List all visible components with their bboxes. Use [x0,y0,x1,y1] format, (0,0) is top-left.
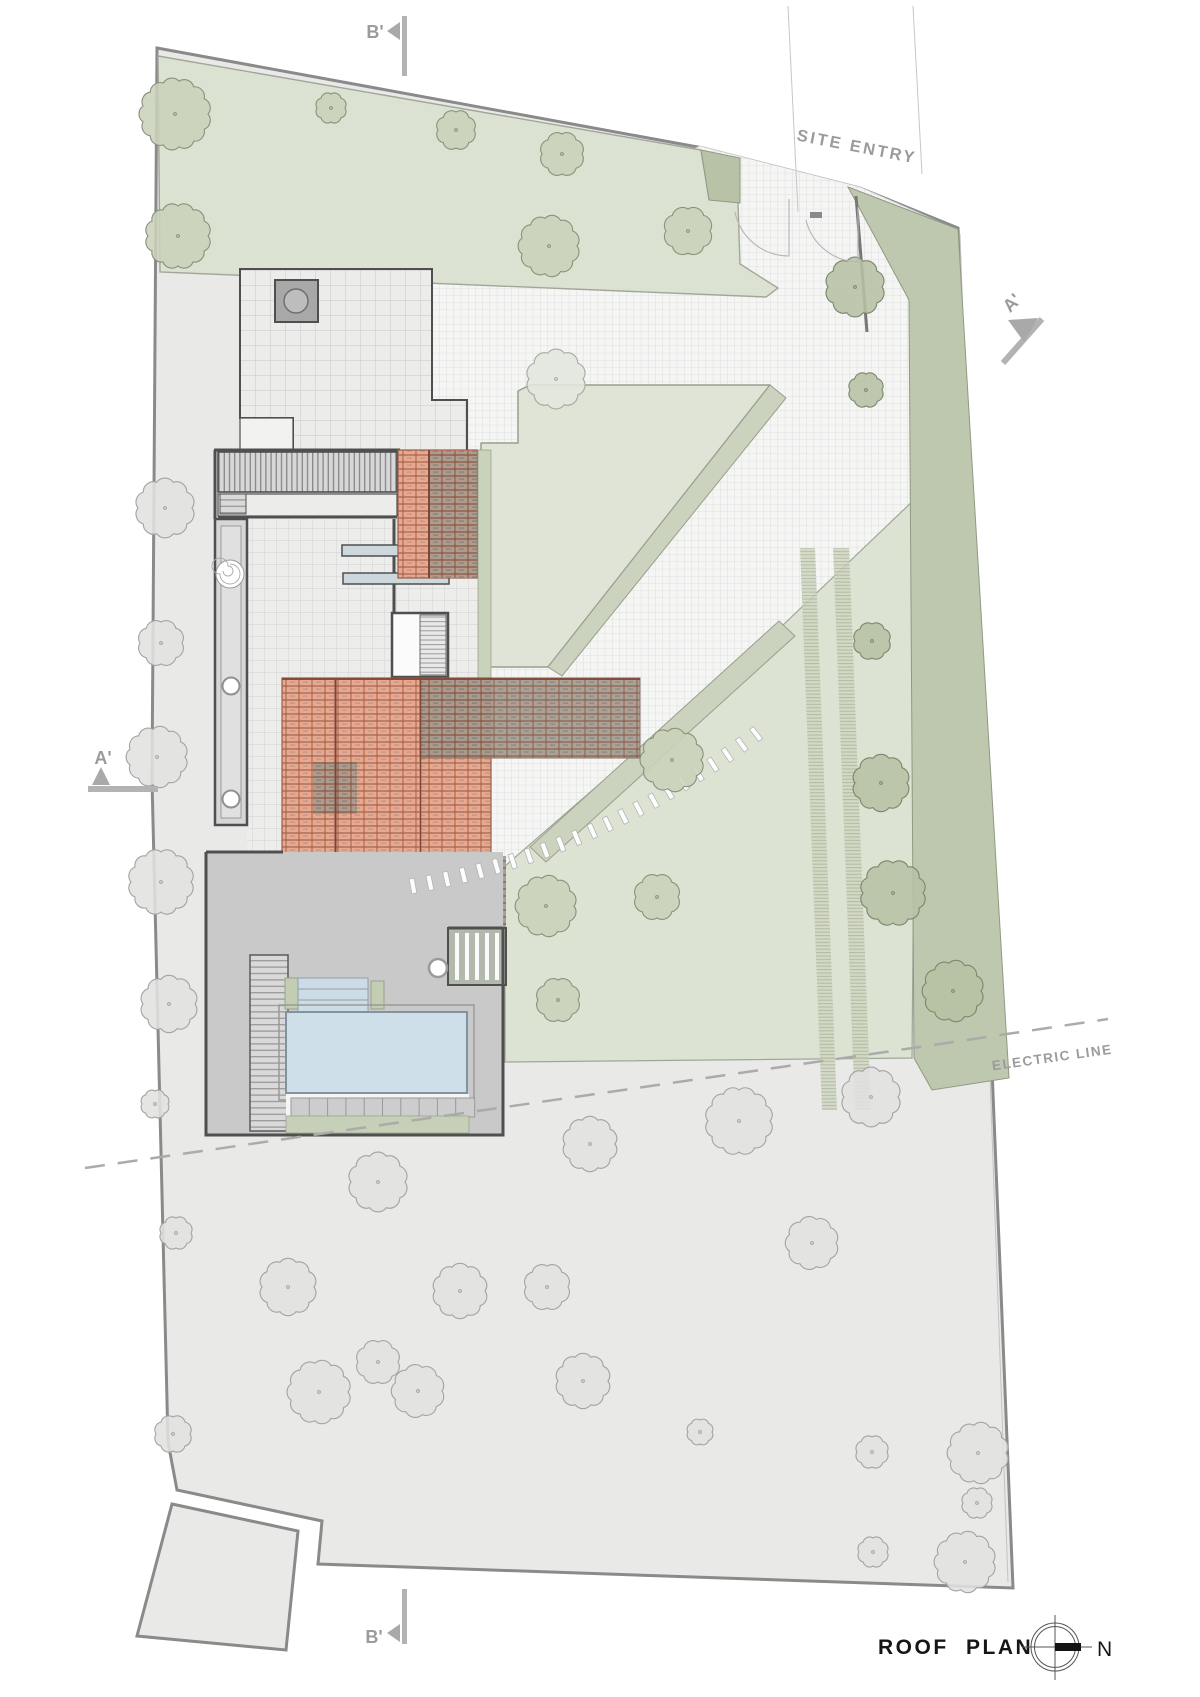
section-marker-a-right: A' [999,290,1042,363]
tree [842,1067,900,1127]
stepping-stone [309,1098,328,1117]
north-label: N [1097,1638,1112,1661]
tree [861,861,925,925]
stepping-stone [364,1098,383,1117]
site-parcel-southwest [137,1504,298,1650]
roof-plan-drawing: SITE ENTRY ELECTRIC LINE A' A' B' B' ROO… [0,0,1200,1697]
roof-upper [398,450,477,578]
electric-line-label: ELECTRIC LINE [991,1042,1113,1074]
tree [129,850,193,914]
stair-treads [420,615,446,675]
pool-column [429,959,447,977]
stepping-stone [419,1098,438,1117]
section-marker-b-bottom: B' [365,1589,407,1647]
chimney-flue [284,289,308,313]
lap-pool-header [298,978,368,1012]
tree [146,204,210,268]
roof-plan-canvas: SITE ENTRY ELECTRIC LINE A' A' B' B' ROO… [0,0,1200,1697]
stepping-stone [346,1098,365,1117]
svg-text:B': B' [365,1627,382,1647]
steps-small [220,494,246,514]
deck-boards [250,955,288,1131]
column-2 [223,791,240,808]
tree [826,257,884,317]
svg-text:A': A' [999,290,1025,316]
site-entry-label: SITE ENTRY [795,127,918,168]
stepping-stone [328,1098,347,1117]
tree [141,975,197,1032]
tree [260,1258,316,1315]
tree [563,1116,617,1171]
pool-green-strip [286,1116,469,1133]
gate-post [810,212,822,218]
tree [349,1152,407,1212]
svg-text:A': A' [94,748,111,768]
stepping-stone [383,1098,402,1117]
pool-compound [206,852,506,1136]
pool-stepping-stones [291,1098,475,1117]
north-compass-icon: N [1022,1615,1112,1680]
tree [527,349,585,409]
tree [556,1353,610,1408]
pool-water [286,1012,467,1093]
tree [126,726,187,787]
tree [433,1263,487,1318]
svg-text:B': B' [366,22,383,42]
column-1 [223,678,240,695]
drawing-title: ROOF PLAN [878,1636,1033,1659]
stepping-stone [401,1098,420,1117]
lawn-north [158,56,778,297]
tree [139,78,210,150]
tree [706,1088,772,1154]
tree [391,1365,443,1418]
tree [785,1217,837,1270]
section-marker-b-top: B' [366,16,407,76]
planter-sliver [478,450,491,678]
stepping-stone [291,1098,310,1117]
tree [853,754,909,811]
courtyard-landing [240,418,293,452]
pergola-north [218,452,397,492]
tree [136,478,194,538]
